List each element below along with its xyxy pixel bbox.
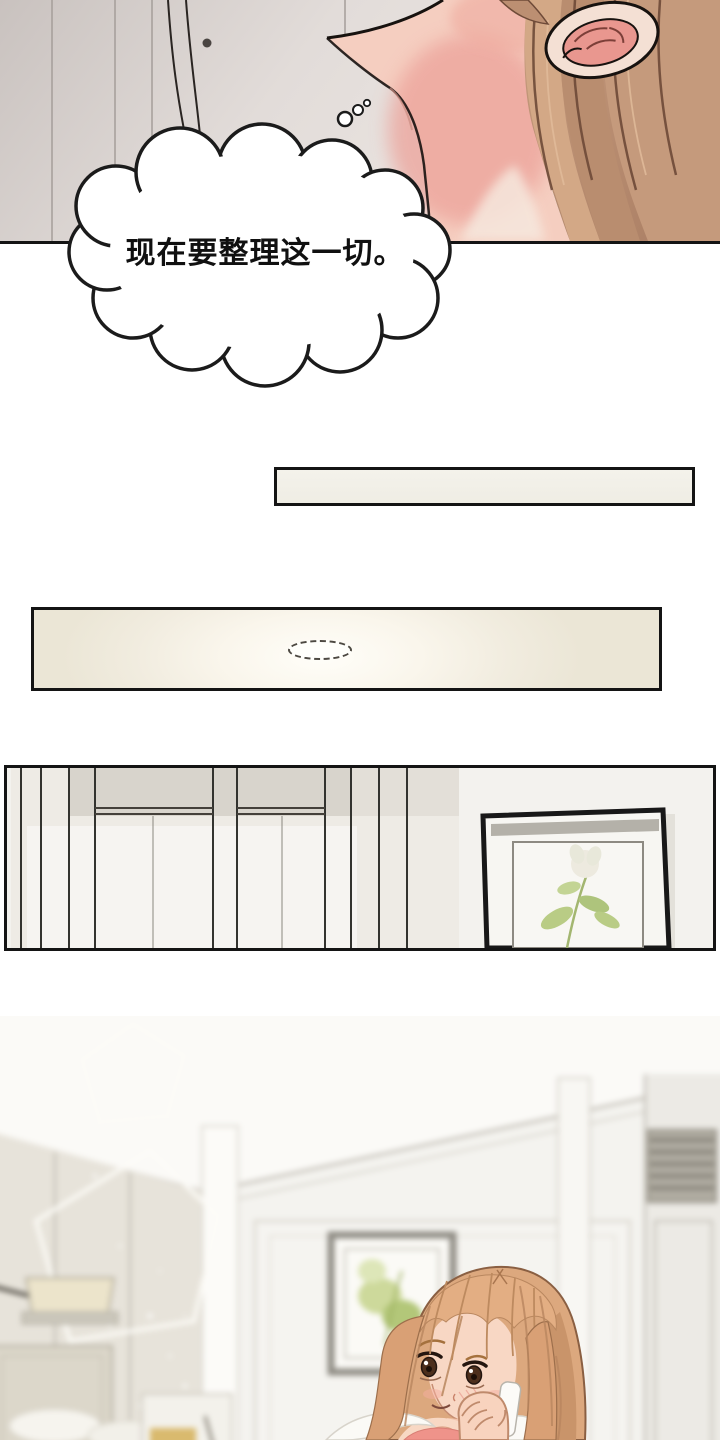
hand	[459, 1392, 509, 1440]
panel-bedroom	[0, 1016, 720, 1440]
thought-trail-circles	[338, 100, 370, 126]
ceiling-lamp	[288, 640, 352, 660]
wall-dot	[203, 39, 212, 48]
wardrobe-light-wash	[27, 826, 357, 948]
blush-left	[423, 1389, 443, 1399]
woman-on-phone	[0, 1016, 720, 1440]
comic-page: 现在要整理这一切。	[0, 0, 720, 1440]
room-illustration	[7, 768, 713, 948]
picture-frame	[483, 810, 675, 948]
thought-bubble-text: 现在要整理这一切。	[110, 234, 420, 274]
wardrobe-top-band-right	[351, 768, 459, 816]
panel-blank-strip	[274, 467, 695, 506]
panel-room	[4, 765, 716, 951]
panel-ceiling	[31, 607, 662, 691]
